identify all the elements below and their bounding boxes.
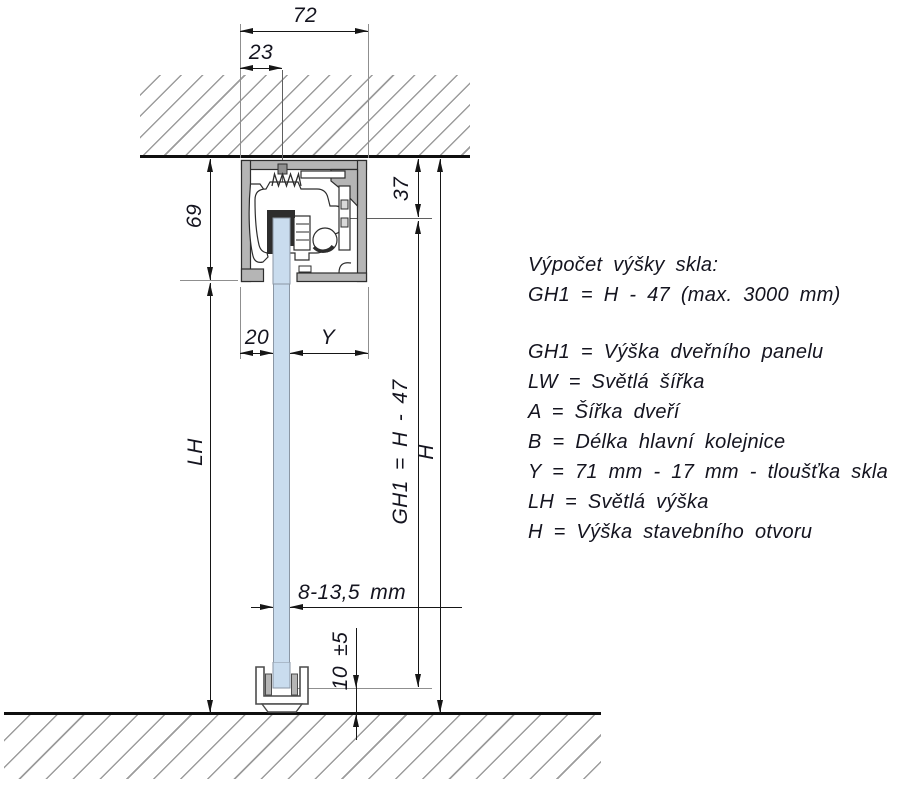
dim-label-opening-height: H [415, 444, 439, 460]
arrow-down-icon [415, 674, 421, 687]
arrow-up-icon [415, 159, 421, 172]
arrow-left-icon [240, 350, 253, 356]
arrow-right-icon [260, 604, 273, 610]
dim-label-right-inset: Y [321, 326, 335, 350]
arrow-right-icon [355, 28, 368, 34]
arrow-down-icon [415, 204, 421, 217]
dim-leader-glass-thickness [290, 607, 462, 608]
arrow-down-icon [437, 700, 443, 713]
dim-label-track-width: 72 [293, 4, 317, 28]
arrow-down-icon [353, 675, 359, 688]
arrow-right-icon [355, 350, 368, 356]
extension-line-track-right [368, 24, 369, 158]
dim-line-clear-height [210, 283, 211, 713]
arrow-up-icon [207, 159, 213, 172]
track-profile-drawing [239, 158, 369, 286]
dim-label-ceiling-to-glass: 37 [390, 177, 414, 201]
technical-drawing-canvas: 72 23 20 Y 8-13,5 mm 69 LH 37 GH1 = H - … [0, 0, 901, 789]
glass-panel [273, 219, 290, 688]
arrow-up-icon [353, 714, 359, 727]
dim-label-left-inset: 20 [245, 326, 269, 350]
dim-label-glass-thickness: 8-13,5 mm [298, 581, 406, 605]
legend-item: LH = Světlá výška [528, 487, 888, 517]
legend-item: GH1 = Výška dveřního panelu [528, 337, 888, 367]
floor-hatch [4, 712, 601, 779]
arrow-right-icon [269, 65, 282, 71]
extension-line-track-left [240, 24, 241, 158]
dim-label-panel-height: GH1 = H - 47 [389, 379, 413, 524]
legend-title: Výpočet výšky skla: [528, 250, 888, 280]
dim-line-opening-height [440, 159, 441, 713]
legend-item: LW = Světlá šířka [528, 367, 888, 397]
floor-guide-drawing [248, 662, 316, 716]
dim-line-header-height [210, 159, 211, 280]
arrow-down-icon [207, 267, 213, 280]
ceiling-hatch [140, 75, 470, 158]
legend-block: Výpočet výšky skla: GH1 = H - 47 (max. 3… [528, 250, 888, 547]
dim-label-floor-clearance: 10 ±5 [329, 632, 353, 690]
arrow-left-icon [240, 65, 253, 71]
legend-item: Y = 71 mm - 17 mm - tloušťka skla [528, 457, 888, 487]
dim-line-track-width [240, 31, 368, 32]
arrow-up-icon [437, 159, 443, 172]
legend-formula: GH1 = H - 47 (max. 3000 mm) [528, 280, 888, 310]
track-bottom-reference-tick [180, 280, 238, 281]
arrow-left-icon [240, 28, 253, 34]
legend-item: A = Šířka dveří [528, 397, 888, 427]
dim-label-bolt-offset: 23 [249, 41, 273, 65]
extension-line-left-lower [240, 287, 241, 359]
dim-label-clear-height: LH [184, 438, 208, 466]
dim-label-header-height: 69 [183, 204, 207, 228]
arrow-down-icon [207, 700, 213, 713]
arrow-left-icon [290, 350, 303, 356]
legend-item: H = Výška stavebního otvoru [528, 517, 888, 547]
arrow-right-icon [260, 350, 273, 356]
legend-item: B = Délka hlavní kolejnice [528, 427, 888, 457]
arrow-up-icon [207, 283, 213, 296]
extension-line-right-lower [368, 287, 369, 359]
arrow-up-icon [415, 221, 421, 234]
